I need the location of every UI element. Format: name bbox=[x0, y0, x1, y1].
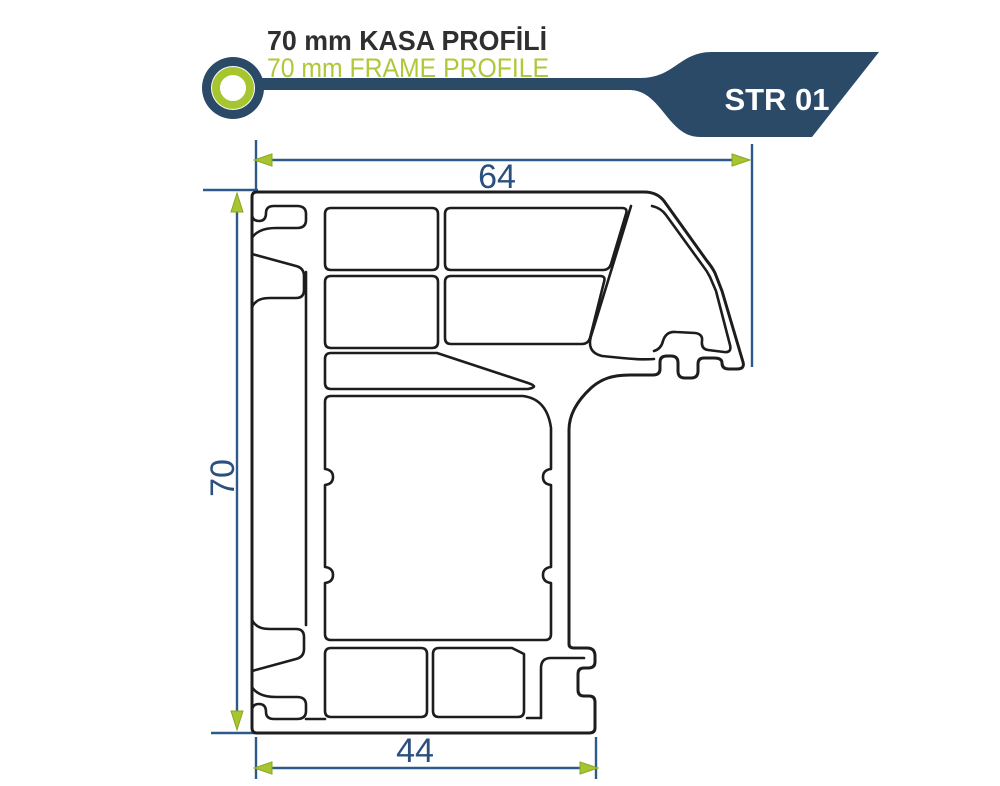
left-hook-bottom-2 bbox=[252, 687, 306, 719]
header: 70 mm KASA PROFİLİ 70 mm FRAME PROFILE S… bbox=[202, 25, 879, 137]
dimension-left-70: 70 bbox=[203, 190, 258, 733]
left-hook-top-2 bbox=[252, 254, 304, 309]
product-code-badge: STR 01 bbox=[724, 82, 829, 117]
dimension-label-top: 64 bbox=[478, 158, 516, 196]
arrow-up-icon bbox=[231, 193, 243, 212]
chamber-mid-left bbox=[325, 276, 438, 348]
logo-mark bbox=[202, 57, 264, 119]
chamber-wedge bbox=[325, 353, 534, 389]
chamber-bottom-right bbox=[433, 648, 524, 717]
chamber-main bbox=[325, 396, 551, 640]
chamber-bottom-left bbox=[325, 648, 427, 717]
page-title: 70 mm KASA PROFİLİ bbox=[267, 25, 547, 56]
arrow-down-icon bbox=[231, 711, 243, 730]
left-hook-bottom-1 bbox=[252, 618, 304, 671]
page: 70 mm KASA PROFİLİ 70 mm FRAME PROFILE S… bbox=[0, 0, 1000, 786]
chamber-top-right bbox=[445, 208, 627, 270]
chamber-mid-right bbox=[445, 276, 605, 344]
left-hook-top-1 bbox=[252, 206, 306, 238]
page-subtitle: 70 mm FRAME PROFILE bbox=[267, 53, 549, 83]
profile-cross-section bbox=[252, 192, 743, 733]
dimension-bottom-44: 44 bbox=[254, 732, 598, 779]
dimension-label-bottom: 44 bbox=[396, 732, 434, 770]
dimension-label-left: 70 bbox=[204, 459, 242, 497]
arrow-right-icon bbox=[732, 154, 750, 166]
chamber-top-left bbox=[325, 208, 438, 270]
profile-drawing: 70 mm KASA PROFİLİ 70 mm FRAME PROFILE S… bbox=[0, 0, 1000, 786]
